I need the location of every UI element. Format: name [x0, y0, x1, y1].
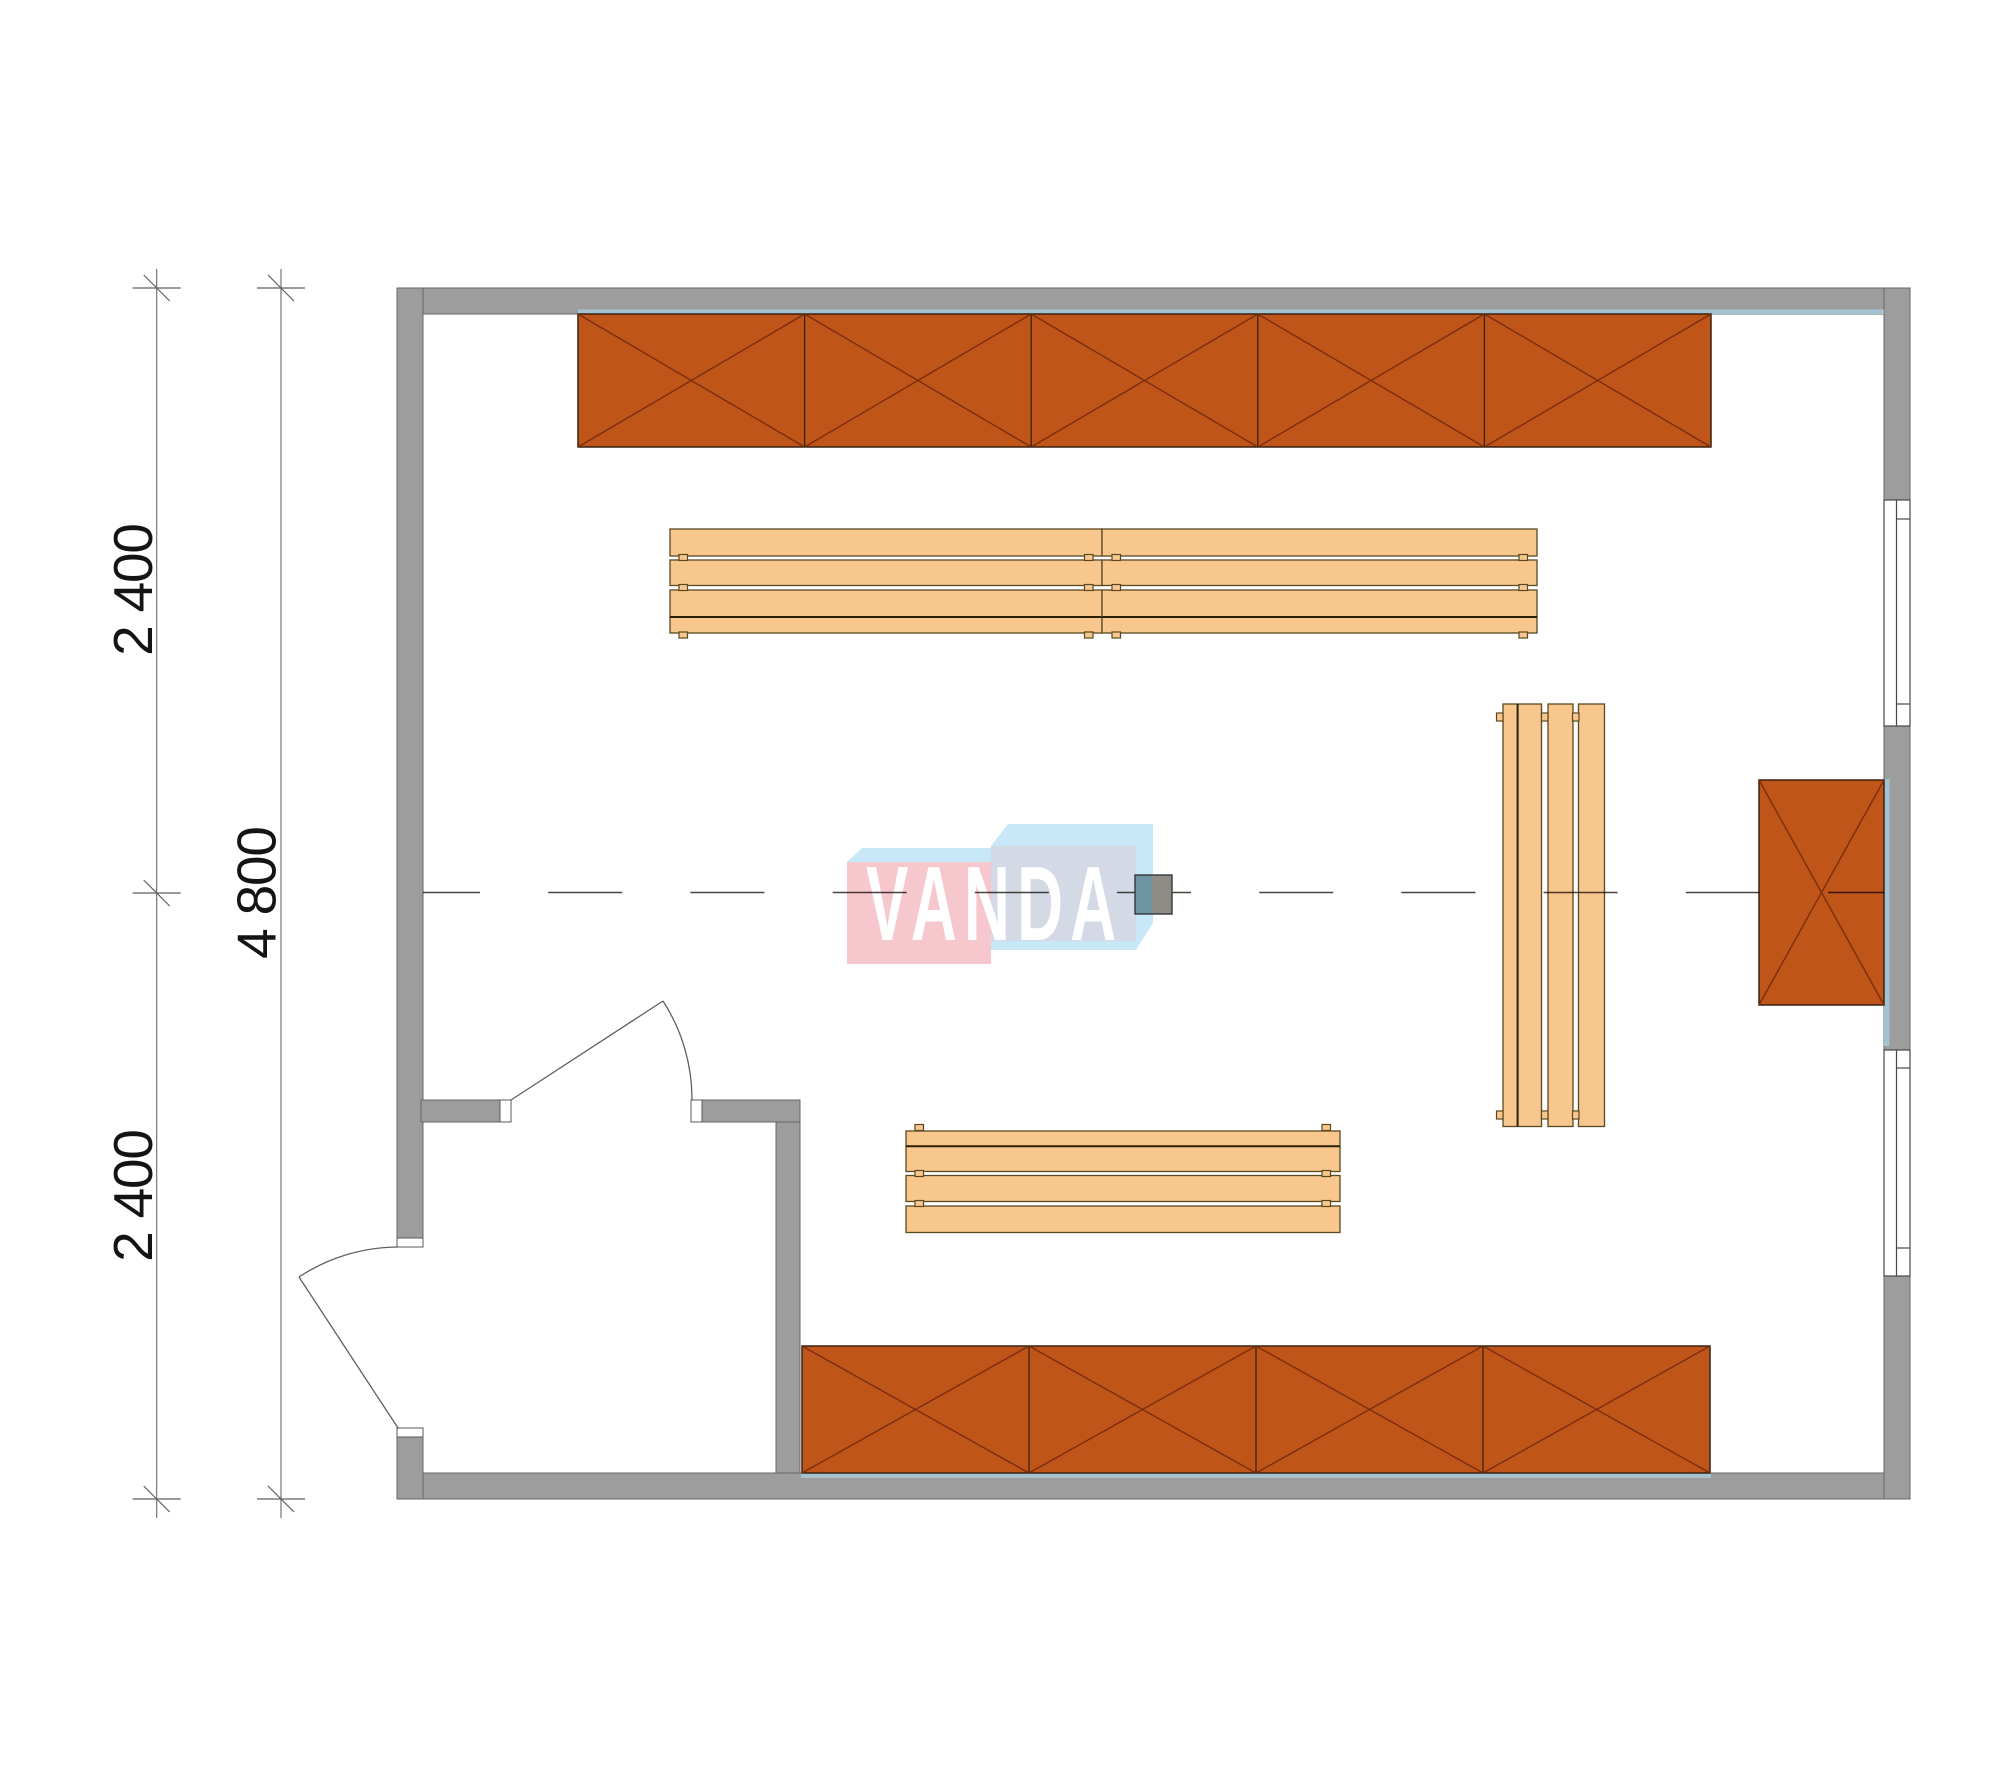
svg-text:2 400: 2 400	[102, 524, 164, 656]
svg-text:2 400: 2 400	[102, 1130, 164, 1262]
svg-text:VANDA: VANDA	[866, 844, 1123, 963]
svg-text:4 800: 4 800	[226, 827, 288, 959]
